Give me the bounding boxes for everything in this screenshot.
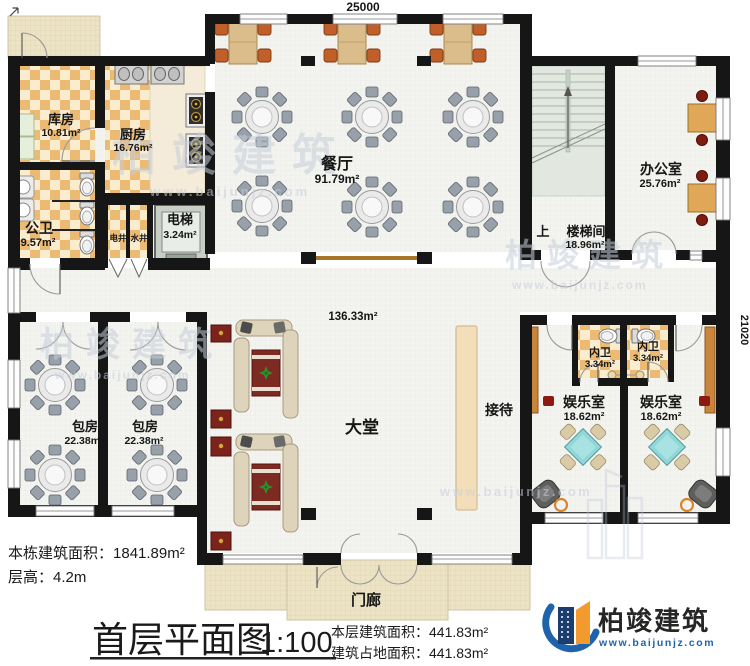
svg-text:www.baijunjz.com: www.baijunjz.com	[511, 278, 648, 292]
room-label-elecshaft: 电井	[109, 233, 127, 243]
pilaster	[417, 252, 432, 264]
page-title: 首层平面图	[92, 619, 272, 660]
pilaster	[417, 56, 431, 66]
lobby-area-label: 136.33m²	[328, 311, 377, 323]
room-label-reception: 接待	[485, 402, 513, 418]
svg-text:16.76m²: 16.76m²	[113, 142, 153, 154]
svg-text:10.81m²: 10.81m²	[41, 127, 81, 139]
room-label-elevator: 电梯	[167, 212, 193, 227]
building-total-area: 本栋建筑面积：1841.89m²	[8, 544, 185, 562]
threshold	[316, 256, 417, 260]
svg-text:18.96m²: 18.96m²	[565, 239, 605, 251]
pilaster	[417, 508, 432, 520]
room-label-office: 办公室	[640, 161, 682, 177]
svg-text:柏竣建筑: 柏竣建筑	[40, 325, 224, 364]
room-label-dining: 餐厅	[320, 154, 353, 173]
toilet	[80, 231, 94, 254]
room-label-private2: 包房	[132, 419, 158, 434]
office-desk	[688, 104, 718, 132]
svg-text:25.76m²: 25.76m²	[640, 178, 681, 190]
svg-text:3.34m²: 3.34m²	[585, 359, 615, 370]
room-label-storage: 库房	[48, 112, 74, 127]
room-label-stairwell: 楼梯间	[566, 224, 605, 239]
toilet	[80, 202, 94, 225]
svg-text:22.38m²: 22.38m²	[124, 435, 164, 447]
dining-round-table	[443, 177, 503, 237]
svg-text:3.34m²: 3.34m²	[633, 353, 663, 364]
title-underline	[90, 657, 336, 660]
toilet	[599, 329, 622, 343]
floor-height: 层高：4.2m	[8, 569, 86, 586]
pilaster	[301, 56, 315, 66]
dimension-right: 21020	[738, 315, 750, 346]
stairwell-graphic	[532, 66, 605, 196]
pilaster	[301, 252, 316, 264]
svg-text:22.38m²: 22.38m²	[64, 435, 104, 447]
logo-website: www.baijunjz.com	[598, 637, 715, 649]
room-label-innerwc2: 内卫	[637, 339, 659, 353]
room-label-kitchen: 厨房	[120, 127, 146, 142]
floor-plan-page: 柏竣建筑 www.baijunjz.com 柏竣建筑 www.baijunjz.…	[0, 0, 750, 666]
svg-text:9.57m²: 9.57m²	[21, 237, 56, 249]
toilet	[80, 173, 94, 196]
room-label-publicwc: 公卫	[25, 220, 53, 236]
room-label-recroom1: 娱乐室	[563, 394, 605, 410]
svg-text:91.79m²: 91.79m²	[315, 172, 360, 186]
room-label-innerwc1: 内卫	[589, 345, 611, 359]
room-label-porch: 门廊	[351, 591, 381, 609]
dining-round-table	[342, 177, 402, 237]
scale-label: 1:100	[260, 627, 333, 659]
floor-plan-canvas: 柏竣建筑 www.baijunjz.com 柏竣建筑 www.baijunjz.…	[0, 0, 750, 666]
svg-text:www.baijunjz.com: www.baijunjz.com	[54, 368, 191, 382]
room-label-private1: 包房	[72, 419, 98, 434]
room-label-watershaft: 水井	[129, 233, 148, 243]
company-logo: 柏竣建筑 www.baijunjz.com	[546, 601, 716, 649]
reception-desk	[456, 326, 477, 510]
floor-area: 本层建筑面积：441.83m²	[331, 624, 488, 640]
svg-text:18.62m²: 18.62m²	[641, 411, 682, 423]
dining-round-table	[443, 87, 503, 147]
stair-up-label: 上	[536, 224, 549, 239]
svg-text:www.baijunjz.com: www.baijunjz.com	[439, 484, 592, 499]
room-label-lobby: 大堂	[345, 417, 379, 437]
office-desk	[688, 184, 718, 212]
logo-company-name: 柏竣建筑	[598, 606, 710, 636]
footprint-area: 建筑占地面积：441.83m²	[331, 645, 488, 661]
porch-step	[287, 560, 448, 620]
svg-text:18.62m²: 18.62m²	[564, 411, 605, 423]
pilaster	[301, 508, 316, 520]
svg-text:3.24m²: 3.24m²	[163, 229, 197, 241]
svg-text:www.baijunjz.com: www.baijunjz.com	[149, 184, 310, 199]
room-label-recroom2: 娱乐室	[640, 394, 682, 410]
dimension-top: 25000	[346, 0, 380, 14]
